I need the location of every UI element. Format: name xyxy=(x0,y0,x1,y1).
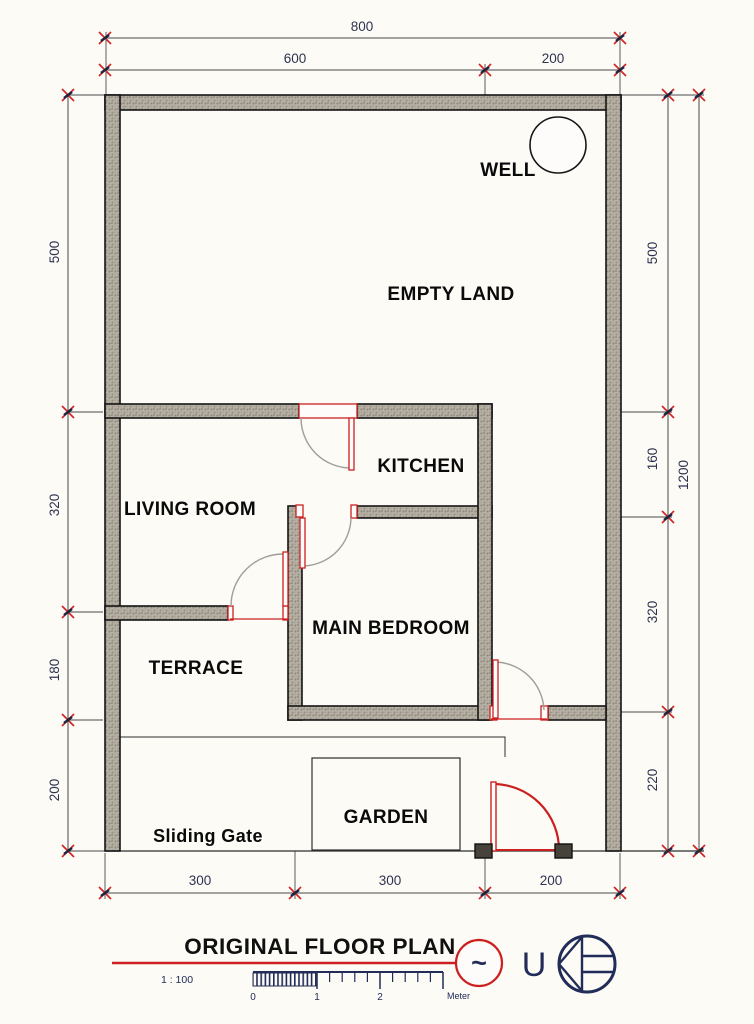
wall-sideyard-south xyxy=(548,706,606,720)
scale-number-1: 1 xyxy=(314,992,320,1003)
garden-outline xyxy=(312,758,460,850)
label-living-room: LIVING ROOM xyxy=(124,499,256,520)
terrace-door-jamb-left xyxy=(228,606,233,620)
label-empty-land: EMPTY LAND xyxy=(387,284,514,305)
label-main-bedroom: MAIN BEDROOM xyxy=(312,618,470,639)
kitchen-door-leaf xyxy=(349,418,354,470)
north-letter: U xyxy=(522,946,547,984)
wall-house-east xyxy=(478,404,492,720)
well-circle xyxy=(530,117,586,173)
label-well: WELL xyxy=(480,160,535,181)
scale-number-2: 2 xyxy=(377,992,383,1003)
wall-kitchen-bedroom-divider xyxy=(357,506,492,518)
dim-left-320: 320 xyxy=(47,494,62,517)
scale-comb xyxy=(253,973,317,986)
gate-post-left xyxy=(475,844,492,858)
terrace-door-leaf xyxy=(283,552,288,606)
dim-left-500: 500 xyxy=(47,241,62,264)
wall-east-boundary xyxy=(606,95,621,851)
kitchen-door-opening xyxy=(299,404,357,418)
dim-bottom-200: 200 xyxy=(540,873,563,888)
dim-right-160: 160 xyxy=(645,448,660,471)
gate-door-leaf xyxy=(491,782,496,851)
dim-left-200: 200 xyxy=(47,779,62,802)
scale-unit: Meter xyxy=(447,991,470,1001)
wall-west-boundary xyxy=(105,95,120,851)
dim-top-600: 600 xyxy=(284,51,307,66)
dim-right-overall: 1200 xyxy=(676,460,691,490)
dim-right-220: 220 xyxy=(645,769,660,792)
label-kitchen: KITCHEN xyxy=(377,456,464,477)
scale-ratio: 1 : 100 xyxy=(161,974,193,986)
dim-left-180: 180 xyxy=(47,659,62,682)
terrace-door-jamb-right xyxy=(283,606,288,620)
plan-title: ORIGINAL FLOOR PLAN xyxy=(184,934,456,959)
label-garden: GARDEN xyxy=(344,807,429,828)
wall-house-north-right xyxy=(357,404,492,418)
tilde-symbol: ~ xyxy=(471,948,487,978)
wall-living-south xyxy=(105,606,228,620)
dim-right-320: 320 xyxy=(645,601,660,624)
dim-right-500: 500 xyxy=(645,242,660,265)
gate-post-right xyxy=(555,844,572,858)
wall-house-north-left xyxy=(105,404,299,418)
dim-bottom-300b: 300 xyxy=(379,873,402,888)
scale-number-0: 0 xyxy=(250,992,256,1003)
wall-north-boundary xyxy=(105,95,621,110)
floor-plan-canvas: 800 600 200 300 300 200 500 320 180 200 … xyxy=(0,0,754,1024)
dim-top-overall: 800 xyxy=(351,19,374,34)
dim-bottom-300a: 300 xyxy=(189,873,212,888)
sideyard-door-leaf xyxy=(493,660,498,718)
floor-plan-page: 800 600 200 300 300 200 500 320 180 200 … xyxy=(0,0,754,1024)
label-terrace: TERRACE xyxy=(149,658,244,679)
bedroom-wall-end-cap xyxy=(296,505,303,517)
bedroom-door-jamb xyxy=(351,505,357,518)
wall-bedroom-south xyxy=(288,706,490,720)
bedroom-door-leaf xyxy=(300,518,305,568)
dim-top-200: 200 xyxy=(542,51,565,66)
label-sliding-gate: Sliding Gate xyxy=(153,826,263,846)
